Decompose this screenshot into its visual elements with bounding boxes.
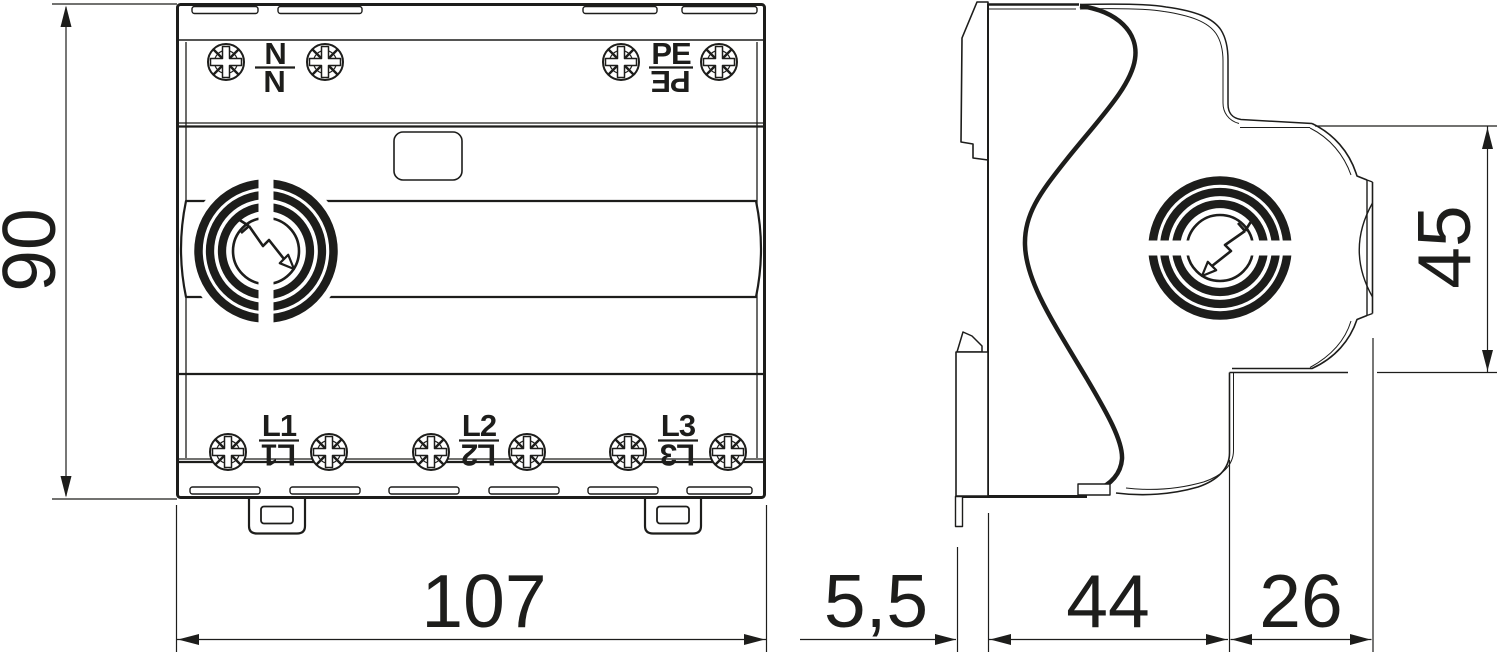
technical-drawing-page: N N PE PE L1 L1 L2 L2 L3 L3 xyxy=(0,0,1500,656)
terminal-label-l1-bottom: L1 xyxy=(261,438,296,473)
dimension-overall-width: 107 xyxy=(177,505,767,652)
screw-head-icon xyxy=(210,434,246,470)
screw-head-icon xyxy=(208,44,244,80)
terminal-label-n-bottom: N xyxy=(264,64,285,99)
side-view xyxy=(956,2,1373,527)
terminal-label-l1: L1 L1 xyxy=(259,408,299,473)
inspection-window-bulge xyxy=(1359,203,1372,297)
dim-front-depth-label: 26 xyxy=(1259,559,1342,643)
screw-head-icon xyxy=(307,44,343,80)
label-window xyxy=(394,132,462,180)
bottom-vent-slots xyxy=(190,487,752,494)
terminal-label-n: N N xyxy=(255,36,295,99)
dim-rail-clip-label: 5,5 xyxy=(824,559,928,643)
surge-arrow-logo-icon xyxy=(1141,169,1299,327)
dimension-rail-clip-depth: 5,5 xyxy=(800,547,958,652)
terminal-label-l2: L2 L2 xyxy=(459,408,499,473)
top-vent-slots xyxy=(192,7,757,14)
dimension-front-depth: 26 xyxy=(1230,338,1374,652)
rail-clip-top xyxy=(961,2,988,160)
housing-rear-curve xyxy=(1025,6,1136,490)
terminal-label-pe-bottom: PE xyxy=(651,64,691,99)
screw-head-icon xyxy=(311,434,347,470)
dimension-overall-height: 90 xyxy=(0,4,177,499)
screw-head-icon xyxy=(701,44,737,80)
screw-head-icon xyxy=(610,434,646,470)
screw-head-icon xyxy=(413,434,449,470)
surge-arrow-logo-icon xyxy=(187,172,345,330)
screw-head-icon xyxy=(603,44,639,80)
dimension-front-height: 45 xyxy=(1315,126,1497,373)
din-mounting-foot-left xyxy=(249,498,305,534)
technical-drawing-canvas: N N PE PE L1 L1 L2 L2 L3 L3 xyxy=(0,0,1500,656)
screw-head-icon xyxy=(710,434,746,470)
screw-head-icon xyxy=(509,434,545,470)
terminal-label-pe: PE PE xyxy=(649,36,693,99)
dim-width-label: 107 xyxy=(421,559,546,643)
din-mounting-foot-right xyxy=(645,498,701,534)
terminal-label-l3-bottom: L3 xyxy=(660,438,695,473)
terminal-label-l2-bottom: L2 xyxy=(462,438,496,473)
dim-base-depth-label: 44 xyxy=(1066,559,1149,643)
terminal-label-l3: L3 L3 xyxy=(658,408,698,473)
dim-height-label: 90 xyxy=(0,208,71,291)
front-view: N N PE PE L1 L1 L2 L2 L3 L3 xyxy=(178,5,765,534)
dim-front-height-label: 45 xyxy=(1402,205,1486,288)
dimension-base-depth: 44 xyxy=(989,513,1229,652)
